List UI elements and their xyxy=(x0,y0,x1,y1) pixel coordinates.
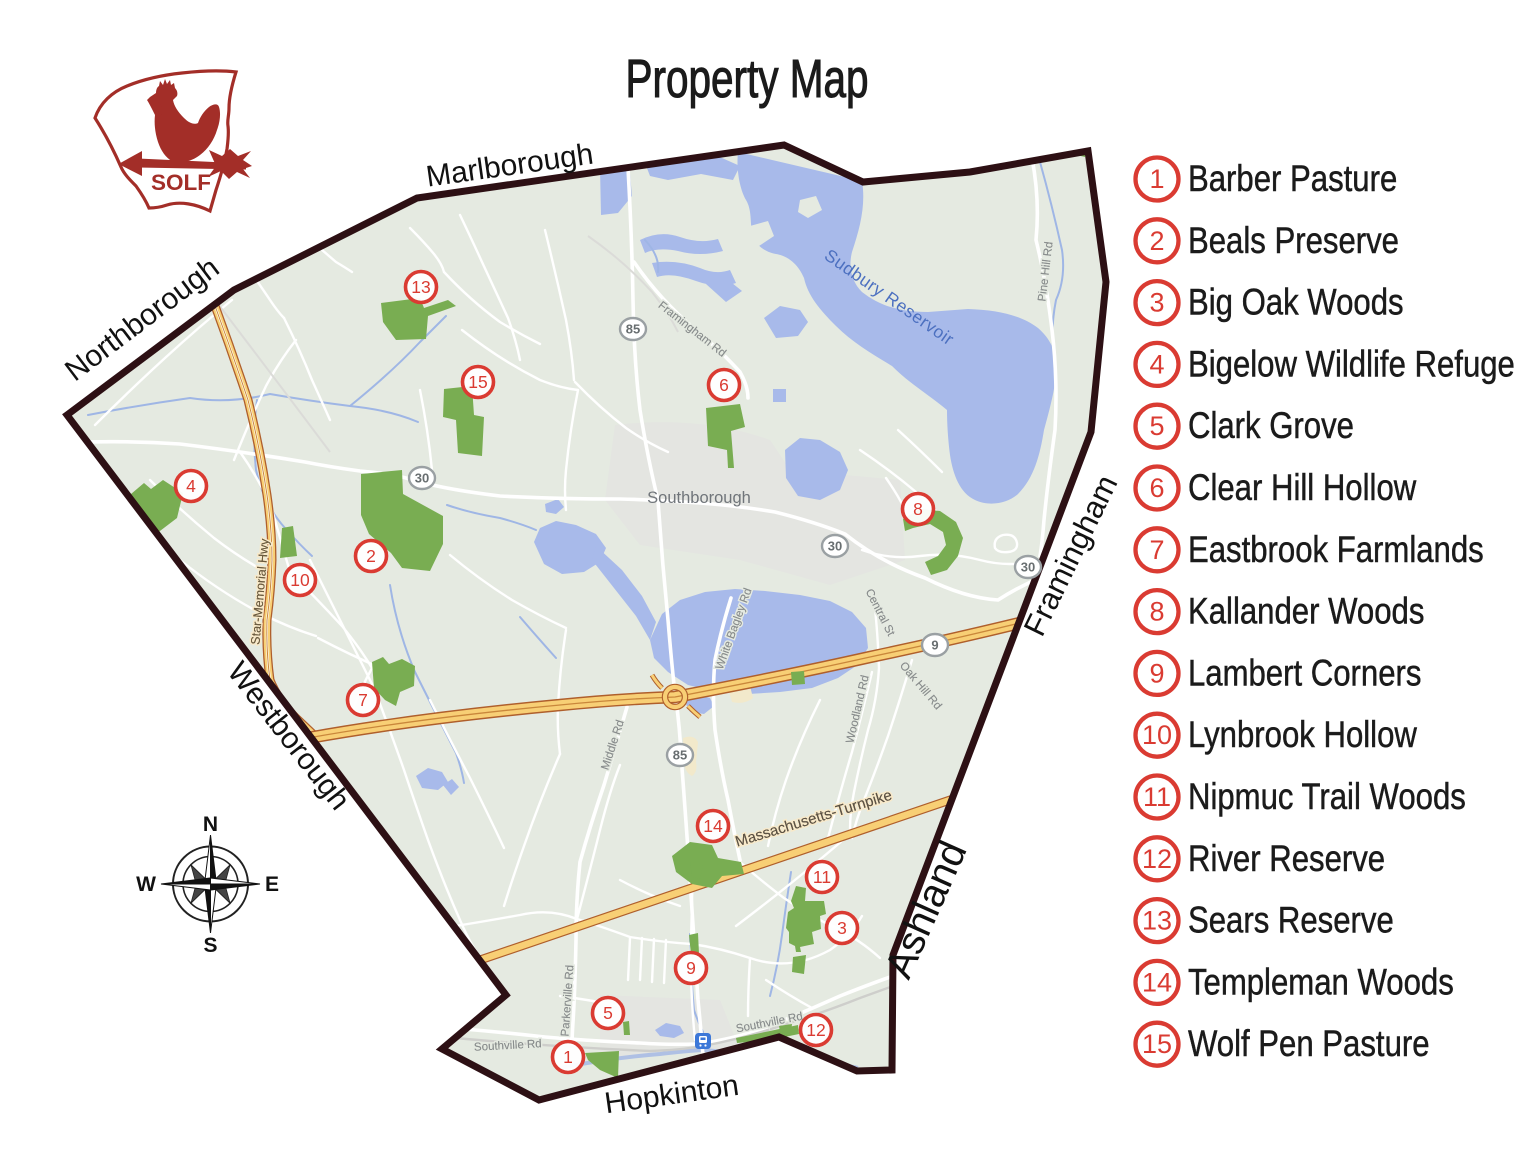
svg-text:Lynbrook Hollow: Lynbrook Hollow xyxy=(1188,715,1417,756)
svg-text:Southborough: Southborough xyxy=(647,489,751,507)
svg-text:30: 30 xyxy=(1021,560,1035,575)
svg-text:4: 4 xyxy=(1149,349,1164,379)
svg-text:13: 13 xyxy=(411,277,430,297)
svg-text:Kallander Woods: Kallander Woods xyxy=(1188,591,1424,632)
svg-text:Property Map: Property Map xyxy=(625,49,868,109)
svg-text:1: 1 xyxy=(563,1047,573,1067)
svg-text:11: 11 xyxy=(1143,782,1171,812)
svg-text:River Reserve: River Reserve xyxy=(1188,838,1385,879)
svg-text:30: 30 xyxy=(828,539,842,554)
svg-text:Wolf Pen Pasture: Wolf Pen Pasture xyxy=(1188,1024,1430,1065)
svg-text:9: 9 xyxy=(1149,658,1164,688)
svg-text:2: 2 xyxy=(1149,226,1164,256)
svg-text:Clark Grove: Clark Grove xyxy=(1188,406,1354,447)
svg-text:14: 14 xyxy=(1142,967,1172,997)
svg-text:12: 12 xyxy=(806,1020,825,1040)
svg-text:9: 9 xyxy=(686,958,696,978)
svg-text:Nipmuc Trail Woods: Nipmuc Trail Woods xyxy=(1188,776,1466,817)
svg-text:12: 12 xyxy=(1142,844,1172,874)
svg-text:85: 85 xyxy=(626,322,640,337)
svg-text:Eastbrook Farmlands: Eastbrook Farmlands xyxy=(1188,529,1484,570)
svg-text:6: 6 xyxy=(719,375,729,395)
svg-text:7: 7 xyxy=(358,690,368,710)
svg-text:3: 3 xyxy=(837,918,847,938)
svg-text:85: 85 xyxy=(673,748,687,763)
svg-text:Bigelow Wildlife Refuge: Bigelow Wildlife Refuge xyxy=(1188,344,1515,385)
svg-text:E: E xyxy=(265,873,279,896)
svg-text:5: 5 xyxy=(603,1003,613,1023)
svg-text:11: 11 xyxy=(813,867,831,887)
svg-text:13: 13 xyxy=(1142,906,1172,936)
svg-text:W: W xyxy=(136,873,156,896)
svg-text:10: 10 xyxy=(1142,720,1172,750)
svg-text:Sears Reserve: Sears Reserve xyxy=(1188,900,1394,941)
svg-text:S: S xyxy=(203,934,217,957)
svg-text:3: 3 xyxy=(1149,288,1164,318)
svg-text:9: 9 xyxy=(931,638,938,653)
svg-text:8: 8 xyxy=(1149,597,1164,627)
svg-text:1: 1 xyxy=(1149,164,1164,194)
svg-text:Lambert Corners: Lambert Corners xyxy=(1188,653,1421,694)
svg-text:30: 30 xyxy=(415,471,429,486)
svg-text:Templeman Woods: Templeman Woods xyxy=(1188,962,1454,1003)
svg-text:6: 6 xyxy=(1149,473,1164,503)
svg-text:Beals Preserve: Beals Preserve xyxy=(1188,220,1399,261)
svg-text:7: 7 xyxy=(1149,535,1164,565)
svg-text:2: 2 xyxy=(366,546,376,566)
svg-text:5: 5 xyxy=(1149,411,1164,441)
svg-text:8: 8 xyxy=(913,499,923,519)
svg-text:10: 10 xyxy=(290,570,310,590)
svg-text:N: N xyxy=(203,813,218,836)
svg-text:14: 14 xyxy=(703,816,723,836)
svg-text:15: 15 xyxy=(1142,1029,1172,1059)
svg-text:15: 15 xyxy=(468,372,487,392)
svg-text:Barber Pasture: Barber Pasture xyxy=(1188,158,1397,199)
svg-text:Clear Hill Hollow: Clear Hill Hollow xyxy=(1188,467,1416,508)
svg-text:Big Oak Woods: Big Oak Woods xyxy=(1188,282,1404,323)
svg-text:4: 4 xyxy=(186,476,196,496)
svg-text:SOLF: SOLF xyxy=(151,170,211,195)
